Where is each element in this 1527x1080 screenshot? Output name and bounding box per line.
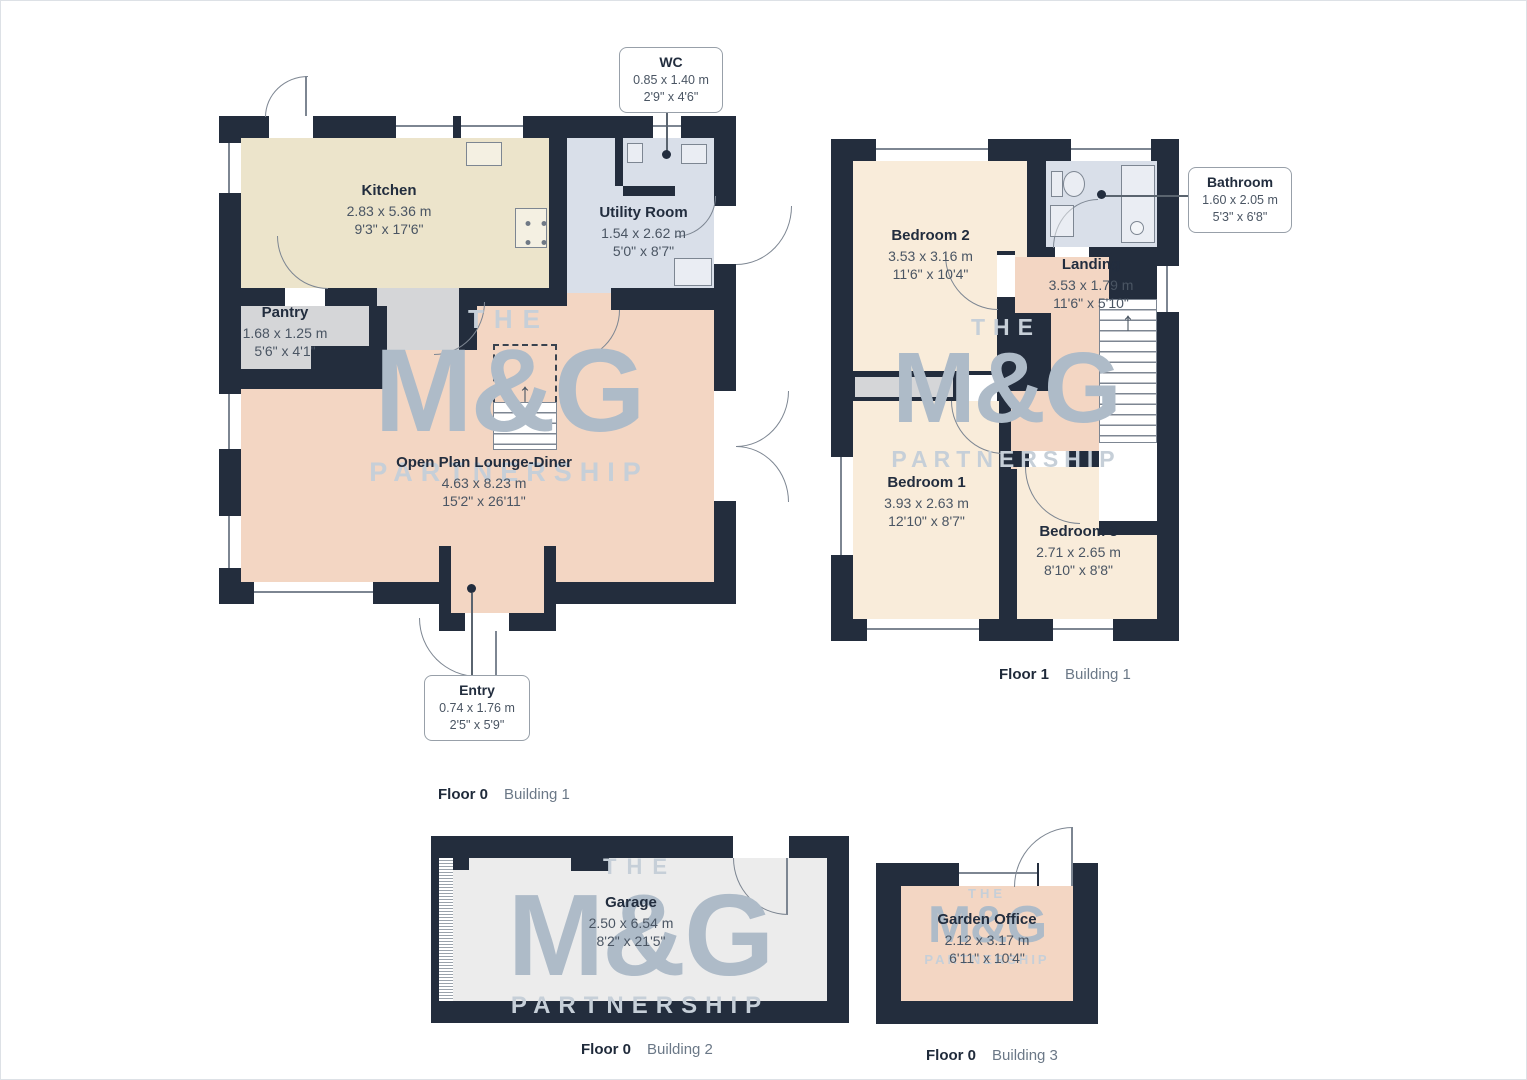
bedroom1-door-opening bbox=[959, 375, 997, 401]
utility-label: Utility Room 1.54 x 2.62 m 5'0" x 8'7" bbox=[571, 204, 716, 260]
toilet-tank-fixture bbox=[1051, 171, 1063, 197]
kitchen-ext-door-opening bbox=[269, 116, 313, 138]
wall-segment bbox=[477, 288, 567, 306]
floor0-building3-plan: THE M&G PARTNERSHIP Garden Office 2.12 x… bbox=[876, 863, 1098, 1024]
wall-pillar bbox=[571, 858, 609, 871]
washer-fixture bbox=[674, 258, 712, 286]
utility-ext-door-opening bbox=[714, 206, 736, 264]
wc-wall bbox=[615, 138, 623, 186]
floor1-building1-caption: Floor 1 Building 1 bbox=[999, 666, 1131, 683]
floor0-building2-caption: Floor 0 Building 2 bbox=[581, 1041, 713, 1058]
french-door-arc bbox=[736, 391, 789, 447]
bedroom1-label: Bedroom 1 3.93 x 2.63 m 12'10" x 8'7" bbox=[839, 474, 1014, 530]
entry-vestibule bbox=[451, 546, 544, 613]
bedroom3-label: Bedroom 3 2.71 x 2.65 m 8'10" x 8'8" bbox=[991, 523, 1166, 579]
entry-door-arc bbox=[419, 618, 478, 677]
pantry-label: Pantry 1.68 x 1.25 m 5'6" x 4'1" bbox=[219, 304, 351, 360]
entry-callout-dot bbox=[467, 584, 476, 593]
kitchen-window bbox=[396, 116, 453, 138]
stairwell-void bbox=[1099, 443, 1157, 521]
floor0-building2-plan: THE M&G PARTNERSHIP Garage 2.50 x 6.54 m… bbox=[431, 836, 849, 1023]
office-door-leaf bbox=[1071, 827, 1073, 886]
floor0-building1-plan: ↑ THE M&G PARTNERSHIP Kitchen 2.83 x 5.3… bbox=[219, 116, 736, 604]
bedroom3-window bbox=[1053, 619, 1113, 641]
wc-wall bbox=[623, 186, 675, 196]
stove-fixture bbox=[515, 208, 547, 248]
floorplan-page: ↑ THE M&G PARTNERSHIP Kitchen 2.83 x 5.3… bbox=[0, 0, 1527, 1080]
stairs-up-arrow: ↑ bbox=[493, 366, 557, 418]
garage-door bbox=[439, 858, 453, 1001]
storage-closet bbox=[851, 373, 957, 401]
bathroom-callout-leader bbox=[1104, 195, 1188, 197]
french-doors-opening bbox=[714, 391, 736, 501]
garage-side-door-leaf bbox=[786, 858, 788, 914]
shower-drain-fixture bbox=[1130, 221, 1144, 235]
kitchen-sink-fixture bbox=[466, 142, 502, 166]
bathroom-window bbox=[1071, 139, 1151, 161]
garden-office-label: Garden Office 2.12 x 3.17 m 6'11" x 10'4… bbox=[886, 911, 1088, 967]
wall-pillar bbox=[453, 858, 469, 870]
floor0-building1-caption: Floor 0 Building 1 bbox=[438, 786, 570, 803]
garage-label: Garage 2.50 x 6.54 m 8'2" x 21'5" bbox=[526, 894, 736, 950]
kitchen-ext-door-arc bbox=[265, 76, 308, 117]
wall-block bbox=[1011, 313, 1051, 391]
wc-callout-leader bbox=[666, 109, 668, 153]
toilet-bowl-fixture bbox=[1063, 171, 1085, 197]
lounge-side-window bbox=[219, 394, 241, 449]
bedroom3-door-opening bbox=[1029, 451, 1067, 467]
entry-door-leaf bbox=[495, 631, 497, 679]
floor0-building3-caption: Floor 0 Building 3 bbox=[926, 1047, 1058, 1064]
wc-callout-dot bbox=[662, 150, 671, 159]
lounge-bottom-window bbox=[254, 582, 373, 604]
wall-segment bbox=[611, 288, 714, 310]
bathroom-sink-fixture bbox=[1050, 205, 1074, 237]
wc-sink-fixture bbox=[627, 143, 643, 163]
landing-label: Landing 3.53 x 1.79 m 11'6" x 5'10" bbox=[1016, 256, 1166, 312]
floor1-building1-plan: ↑ THE M&G PARTNERSHIP bbox=[831, 139, 1179, 641]
bedroom2-window bbox=[876, 139, 988, 161]
office-door-arc bbox=[1014, 827, 1073, 887]
entry-callout-leader bbox=[471, 593, 473, 675]
wc-toilet-fixture bbox=[681, 144, 707, 164]
kitchen-ext-door-leaf bbox=[305, 76, 307, 116]
french-door-arc bbox=[736, 446, 789, 502]
bathroom-callout: Bathroom 1.60 x 2.05 m 5'3" x 6'8" bbox=[1188, 167, 1292, 233]
lounge-label: Open Plan Lounge-Diner 4.63 x 8.23 m 15'… bbox=[354, 454, 614, 510]
wc-callout: WC 0.85 x 1.40 m 2'9" x 4'6" bbox=[619, 47, 723, 113]
bathroom-callout-dot bbox=[1097, 190, 1106, 199]
kitchen-label: Kitchen 2.83 x 5.36 m 9'3" x 17'6" bbox=[289, 182, 489, 238]
bedroom2-label: Bedroom 2 3.53 x 3.16 m 11'6" x 10'4" bbox=[843, 227, 1018, 283]
garage-side-door-opening bbox=[733, 836, 789, 858]
lounge-side-window bbox=[219, 516, 241, 568]
kitchen-window bbox=[461, 116, 523, 138]
utility-ext-door-arc bbox=[736, 206, 792, 265]
entry-callout: Entry 0.74 x 1.76 m 2'5" x 5'9" bbox=[424, 675, 530, 741]
bedroom1-window bbox=[867, 619, 979, 641]
kitchen-side-window bbox=[219, 143, 241, 193]
